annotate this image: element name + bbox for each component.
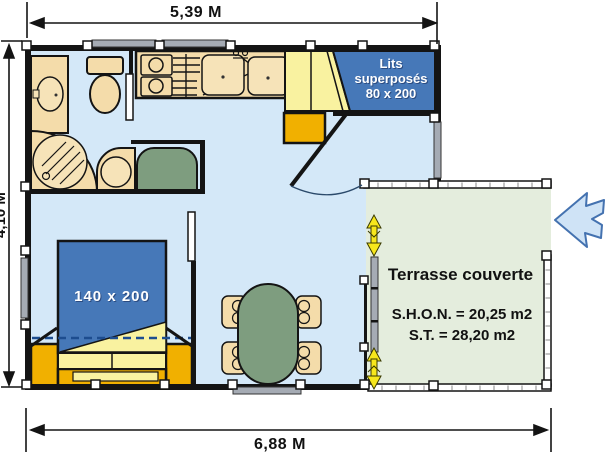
bunk-bed-label: Lits superposés 80 x 200	[345, 56, 437, 101]
dimension-top-label: 5,39 M	[131, 4, 261, 22]
toilet	[87, 57, 123, 113]
terrace-title: Terrasse couverte	[368, 265, 553, 285]
bathroom-vanity	[31, 56, 68, 133]
dimension-left-label: 4,10 M	[0, 175, 8, 255]
stove	[141, 55, 172, 96]
armchair	[137, 148, 197, 192]
floor-plan-drawing	[0, 0, 605, 454]
bunk-bed-label-line3: 80 x 200	[345, 86, 437, 101]
entry-arrow-icon	[555, 193, 604, 247]
double-bed-label: 140 x 200	[62, 288, 162, 305]
bunk-bed-label-line1: Lits	[345, 56, 437, 71]
terrace-shon-label: S.H.O.N. = 20,25 m2	[366, 306, 558, 323]
bathroom-door	[126, 74, 133, 120]
bedroom-door	[188, 212, 195, 261]
dining-table	[238, 284, 298, 384]
bunk-bed-label-line2: superposés	[345, 71, 437, 86]
terrace-st-label: S.T. = 28,20 m2	[366, 327, 558, 344]
dimension-bottom-label: 6,88 M	[200, 436, 360, 454]
floor-plan: 5,39 M 6,88 M 4,10 M Lits superposés 80 …	[0, 0, 605, 454]
storage-cabinet	[284, 113, 325, 143]
terrace-floor	[366, 186, 551, 386]
